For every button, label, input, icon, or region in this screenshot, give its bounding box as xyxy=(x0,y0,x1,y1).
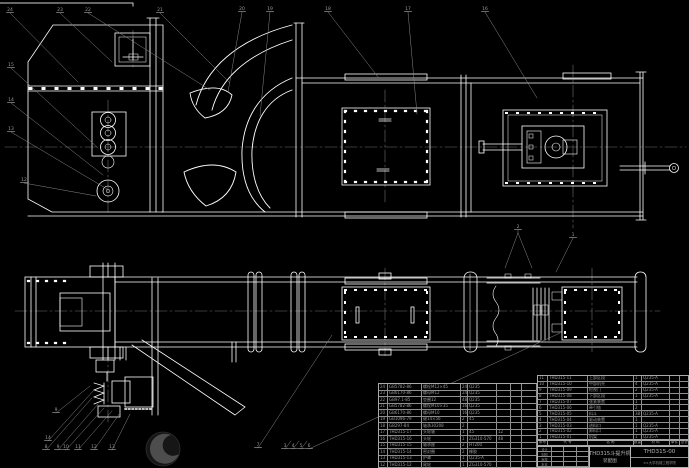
bom-header-cell: 单件 xyxy=(670,441,680,445)
balloon-number: 12 xyxy=(91,444,97,450)
balloon-number: 17 xyxy=(405,6,411,12)
bom-row: 12THD315-12尾轮1ZG310-570 xyxy=(379,462,537,468)
balloon-number: 1 xyxy=(572,232,575,238)
inspection-door-plan xyxy=(342,273,430,355)
tail-section xyxy=(479,72,679,220)
head-plan xyxy=(25,263,158,415)
balloon-number: 22 xyxy=(85,7,91,13)
drawing-number: THD315-00 xyxy=(631,447,688,458)
sheet-border xyxy=(0,3,133,6)
balloon-number: 5 xyxy=(300,443,303,449)
balloon-number: 23 xyxy=(57,7,63,13)
sig-label: 批准 xyxy=(538,462,552,467)
balloon-number: 9 xyxy=(57,444,60,450)
leader-lines xyxy=(505,233,532,268)
balloon-number: 16 xyxy=(482,6,488,12)
balloon-number: 8 xyxy=(45,444,48,450)
balloon-number: 13 xyxy=(8,126,14,132)
balloon-number: 20 xyxy=(239,6,245,12)
balloon-number: 6 xyxy=(308,443,311,449)
organization: ××大学机械工程学院 xyxy=(631,458,688,467)
bom-table-right: 11THD315-11上部区段1Q235-A10THD315-10中部机壳4Q2… xyxy=(537,375,689,440)
balloon-number: 11 xyxy=(75,444,81,450)
head-section xyxy=(28,18,163,212)
signature-grid: 设计制图审核批准 xyxy=(538,447,589,467)
sheet-name: 装配图 xyxy=(603,458,617,464)
bom-header-cell: 代 号 xyxy=(548,441,588,445)
balloon-number: 10 xyxy=(63,444,69,450)
bom-table-left: 24GB5782-86螺栓M12×4524Q23523GB6170-86螺母M1… xyxy=(378,383,538,468)
front-view xyxy=(28,18,679,220)
middle-casing xyxy=(28,23,643,217)
drawing-sheet: 2423222120191817161514131212345678910111… xyxy=(0,0,689,468)
balloon-number: 2 xyxy=(517,224,520,230)
tail-plan xyxy=(487,274,622,350)
balloon-number: 9 xyxy=(55,407,58,413)
balloon-number: 15 xyxy=(8,62,14,68)
balloon-number: 13 xyxy=(109,444,115,450)
logo-watermark xyxy=(146,432,180,466)
balloon-number: 21 xyxy=(157,7,163,13)
inspection-door-front xyxy=(342,73,611,218)
title-cell: THD315斗提升机 装配图 xyxy=(589,447,631,467)
bom-header-cell: 序号 xyxy=(538,441,548,445)
bom-header-cell: 总计 xyxy=(680,441,689,445)
balloon-number: 12 xyxy=(21,177,27,183)
drawing-number-cell: THD315-00 ××大学机械工程学院 xyxy=(631,447,688,467)
title-block: 设计制图审核批准 THD315斗提升机 装配图 THD315-00 ××大学机械… xyxy=(537,446,689,468)
balloon-number: 3 xyxy=(284,443,287,449)
balloon-number: 4 xyxy=(292,443,295,449)
product-name: THD315斗提升机 xyxy=(589,450,631,457)
balloon-number: 14 xyxy=(8,97,14,103)
balloon-number: 14 xyxy=(45,435,51,441)
balloon-number: 7 xyxy=(257,442,260,448)
balloon-number: 18 xyxy=(325,6,331,12)
bom-header-cell: 材 料 xyxy=(642,441,670,445)
bom-header-cell: 数量 xyxy=(634,441,642,445)
feed-chute xyxy=(132,340,245,415)
balloon-number: 19 xyxy=(267,6,273,12)
bom-header-cell: 名 称 xyxy=(588,441,634,445)
balloon-number: 24 xyxy=(7,7,13,13)
